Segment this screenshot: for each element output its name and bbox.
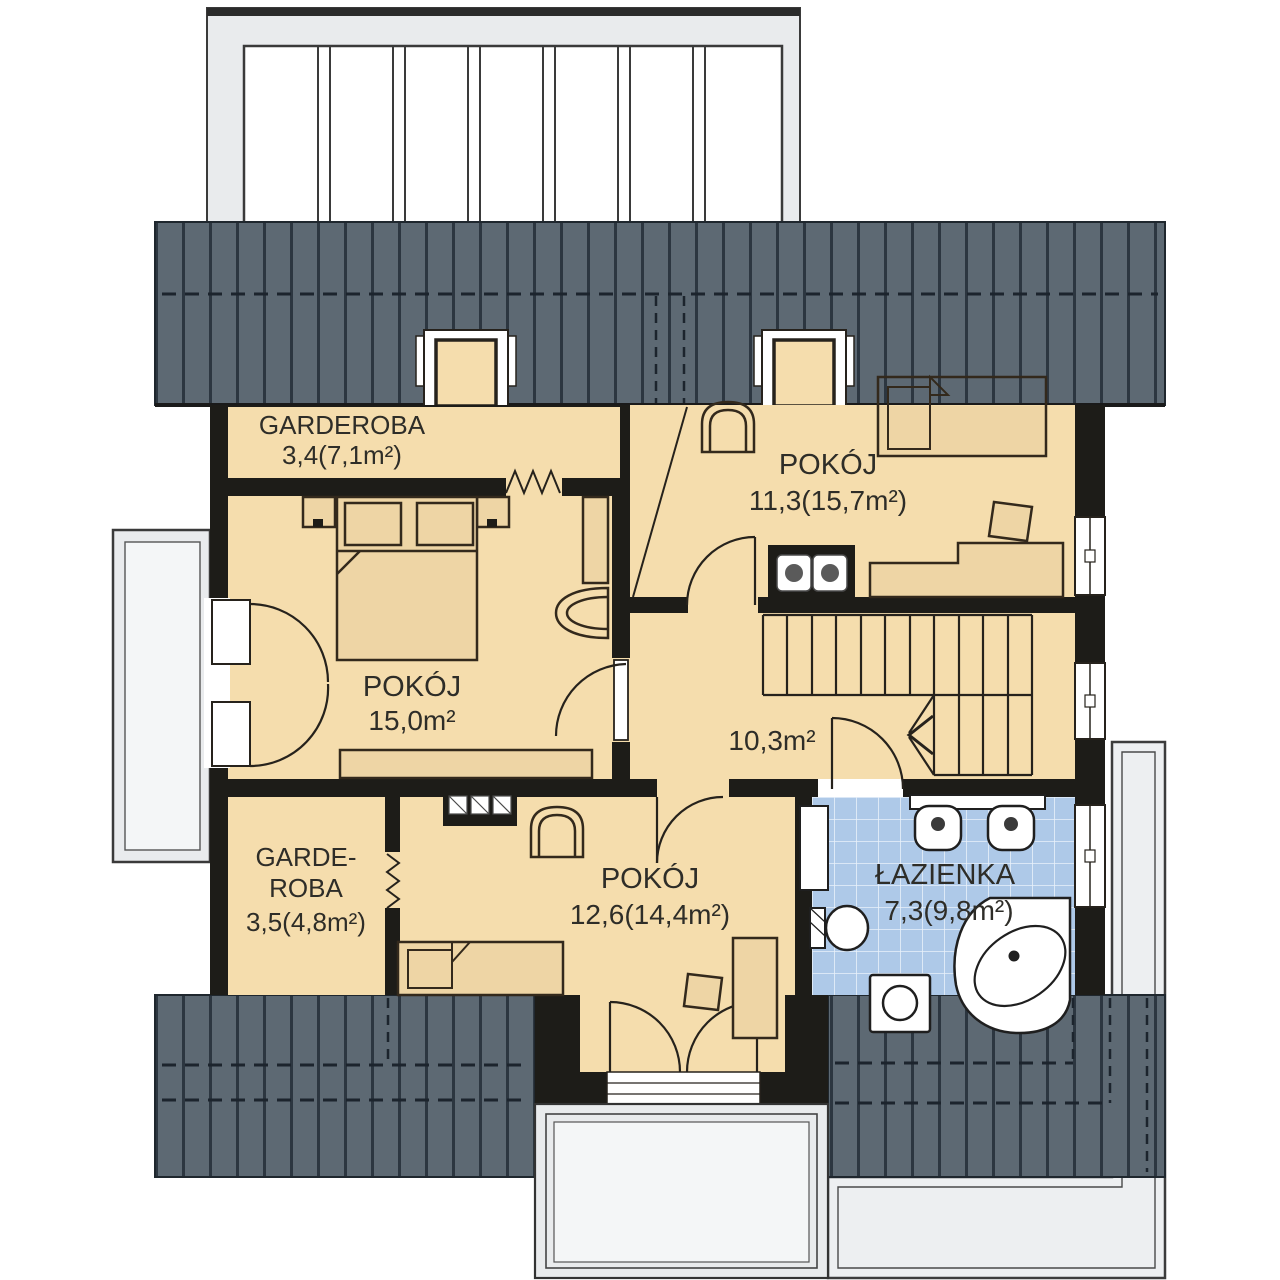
balcony-door-sill <box>607 1072 760 1106</box>
label-pokoj-bottom-name: POKÓJ <box>601 862 699 895</box>
label-pokoj-top-right-name: POKÓJ <box>779 448 877 481</box>
label-lazienka-name: ŁAZIENKA <box>875 859 1016 891</box>
door-leaf <box>212 600 250 664</box>
label-hall-area: 10,3m² <box>728 725 815 756</box>
balcony-bottom <box>535 1104 828 1278</box>
sink <box>988 806 1034 850</box>
desk-bottom <box>733 938 777 1038</box>
floor-plan-page: GARDEROBA 3,4(7,1m²) POKÓJ 15,0m² POKÓJ … <box>0 0 1280 1280</box>
window-hall <box>1075 663 1105 739</box>
toilet <box>810 906 868 950</box>
label-garderoba-bottom-area: 3,5(4,8m²) <box>246 907 366 937</box>
label-garderoba-bottom-name: GARDE- <box>255 842 356 872</box>
bathroom-door-opening <box>818 779 903 797</box>
bidet <box>870 975 930 1032</box>
roof-window-left <box>416 330 516 408</box>
windows-right-wall <box>1075 517 1105 907</box>
vent-box <box>443 790 517 826</box>
door-leaf <box>212 702 250 766</box>
label-pokoj-bottom-area: 12,6(14,4m²) <box>570 899 730 930</box>
balcony-left <box>113 530 210 862</box>
wardrobe-left-room <box>583 497 608 583</box>
balcony-top-edge <box>207 8 800 16</box>
sink <box>915 806 961 850</box>
flue-box <box>768 545 855 613</box>
window-room-top-right <box>1075 517 1105 595</box>
floor-plan-drawing: GARDEROBA 3,4(7,1m²) POKÓJ 15,0m² POKÓJ … <box>0 0 1280 1280</box>
label-garderoba-top-name: GARDEROBA <box>259 410 426 440</box>
label-garderoba-bottom-name2: ROBA <box>269 873 343 903</box>
roof-bottom-left <box>155 995 535 1177</box>
chair-bottom <box>684 974 722 1010</box>
label-garderoba-top-area: 3,4(7,1m²) <box>282 440 402 470</box>
roof-window-right <box>754 330 854 408</box>
label-pokoj-top-right-area: 11,3(15,7m²) <box>749 485 907 516</box>
bed-bottom <box>398 942 563 995</box>
label-pokoj-left-area: 15,0m² <box>368 705 455 736</box>
window-bathroom <box>1075 805 1105 907</box>
label-lazienka-area: 7,3(9,8m²) <box>884 895 1013 926</box>
bathroom-radiator <box>800 806 828 890</box>
balcony-top <box>207 8 800 226</box>
dresser <box>340 750 592 778</box>
chair-top-right <box>989 502 1032 541</box>
label-pokoj-left-name: POKÓJ <box>363 670 461 703</box>
